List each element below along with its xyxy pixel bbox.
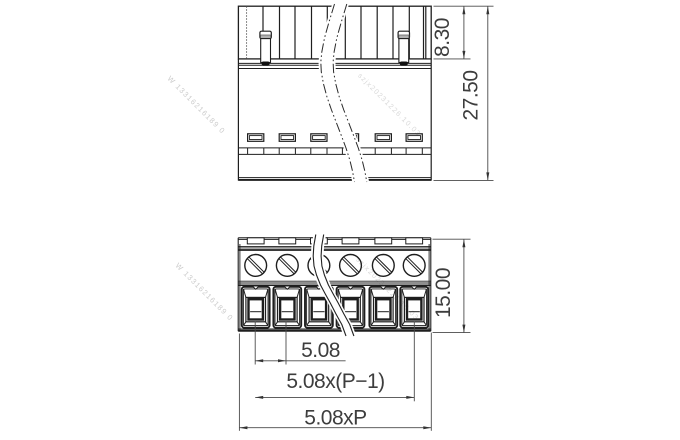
svg-text:5.08xP: 5.08xP bbox=[304, 407, 366, 430]
svg-text:5.08: 5.08 bbox=[301, 339, 340, 362]
svg-text:8.30: 8.30 bbox=[431, 18, 454, 57]
svg-text:27.50: 27.50 bbox=[460, 70, 483, 120]
svg-text:15.00: 15.00 bbox=[432, 268, 455, 318]
svg-text:5.08x(P−1): 5.08x(P−1) bbox=[286, 370, 384, 393]
